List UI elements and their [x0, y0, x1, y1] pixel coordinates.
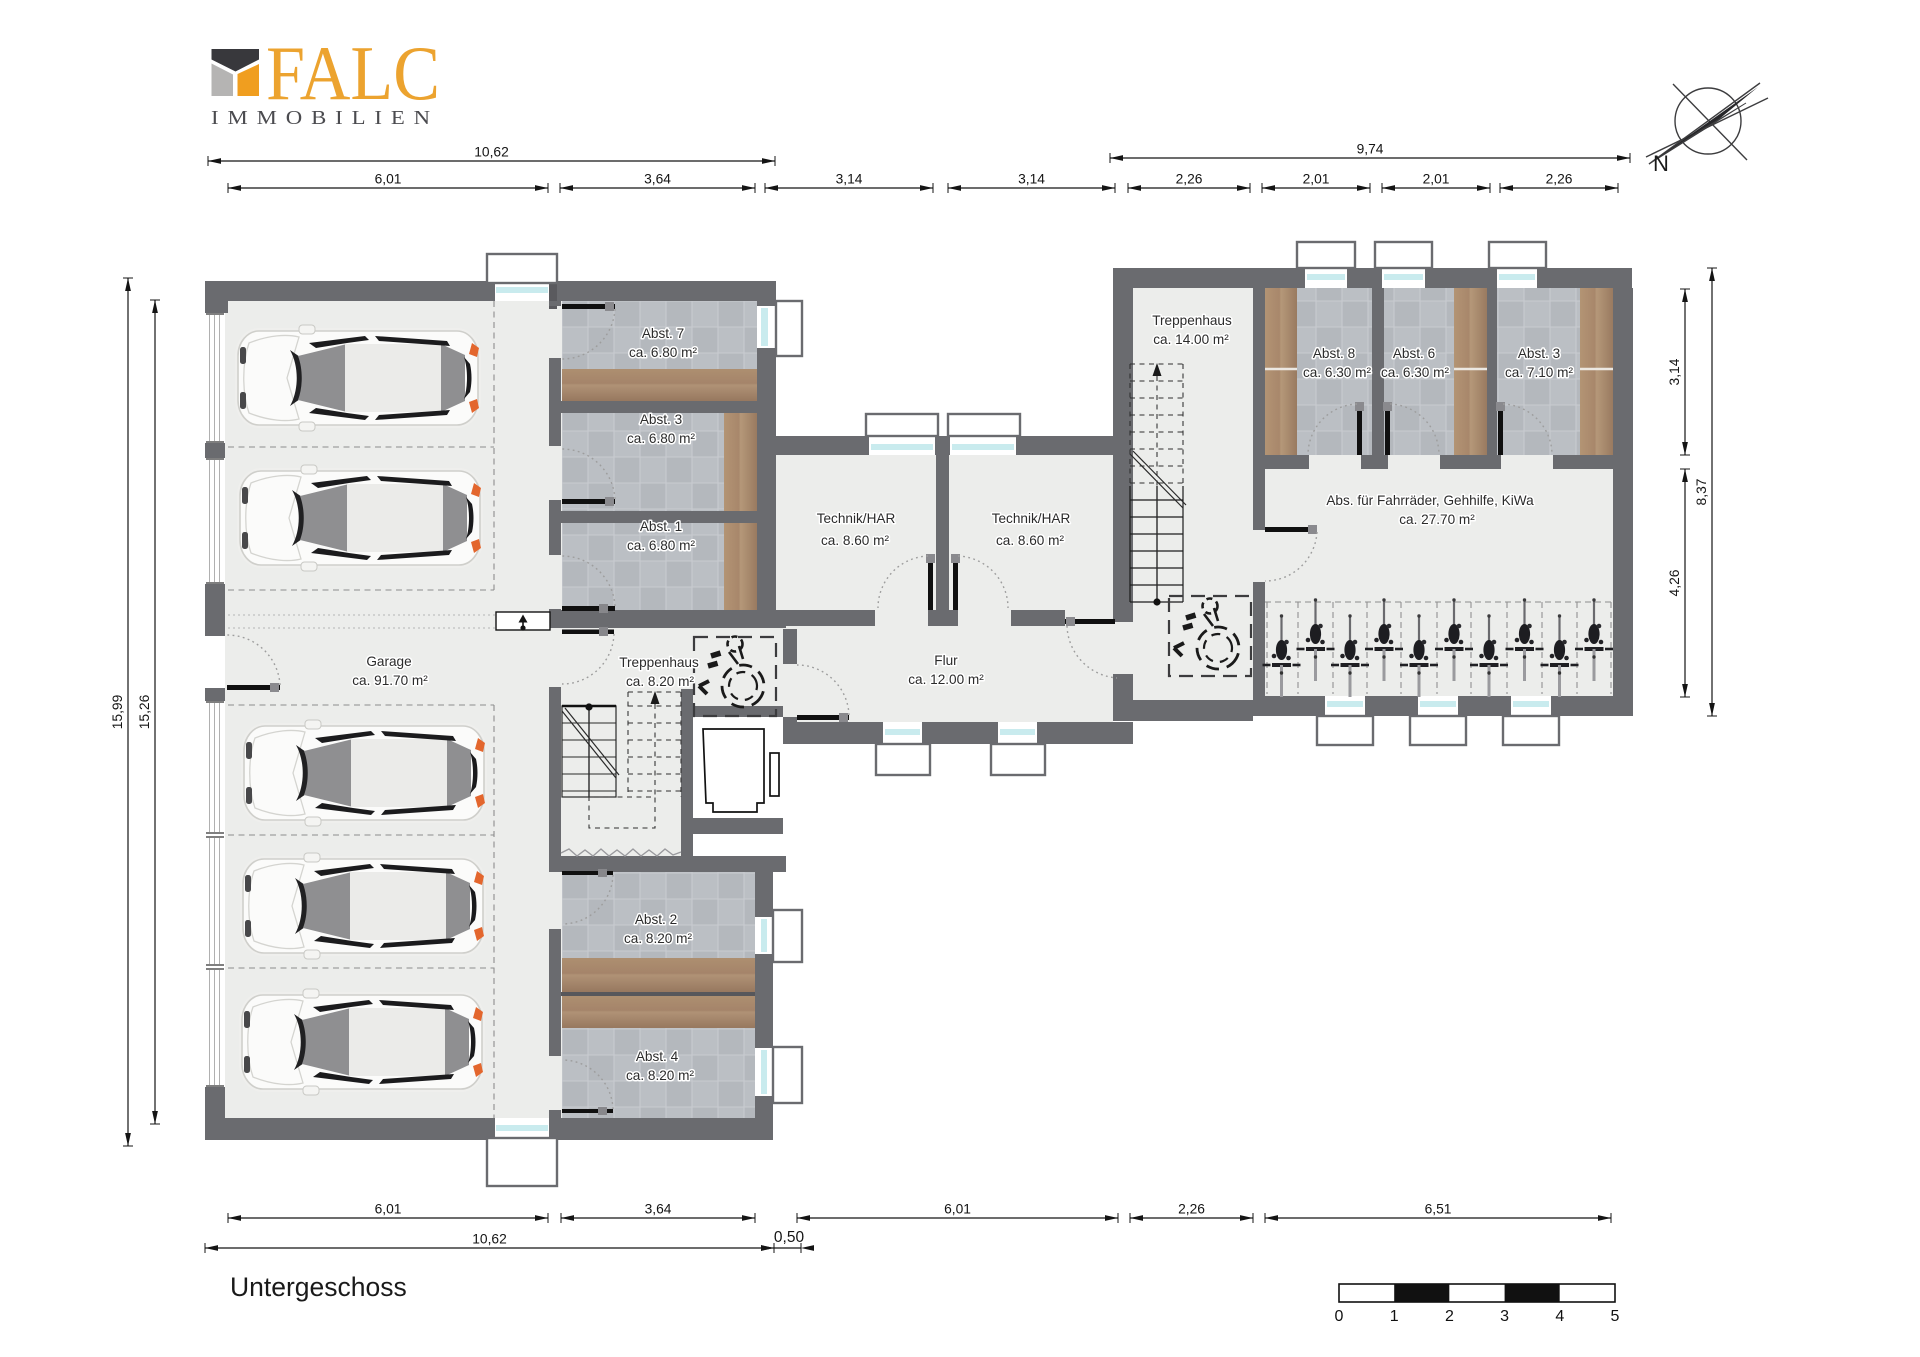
svg-text:Abst. 3: Abst. 3 [1518, 346, 1560, 361]
svg-text:ca. 8.60 m²: ca. 8.60 m² [996, 533, 1064, 548]
svg-text:FALC: FALC [266, 30, 440, 116]
svg-text:ca. 14.00 m²: ca. 14.00 m² [1153, 332, 1229, 347]
svg-text:ca. 8.60 m²: ca. 8.60 m² [821, 533, 889, 548]
svg-text:Abst. 1: Abst. 1 [640, 519, 682, 534]
svg-text:9,74: 9,74 [1357, 142, 1384, 157]
svg-text:ca. 27.70 m²: ca. 27.70 m² [1399, 512, 1475, 527]
svg-text:2,26: 2,26 [1546, 172, 1573, 187]
svg-text:Treppenhaus: Treppenhaus [1152, 313, 1232, 328]
svg-text:IMMOBILIEN: IMMOBILIEN [211, 107, 439, 129]
svg-text:Technik/HAR: Technik/HAR [992, 511, 1071, 526]
svg-text:3,64: 3,64 [645, 1202, 672, 1217]
svg-text:ca. 91.70 m²: ca. 91.70 m² [352, 673, 428, 688]
svg-text:Abst. 3: Abst. 3 [640, 412, 682, 427]
svg-text:Abst. 7: Abst. 7 [642, 326, 684, 341]
svg-text:8,37: 8,37 [1694, 479, 1709, 506]
svg-text:Technik/HAR: Technik/HAR [817, 511, 896, 526]
svg-text:2,26: 2,26 [1178, 1202, 1205, 1217]
svg-text:ca. 6.80 m²: ca. 6.80 m² [627, 538, 695, 553]
svg-text:3,64: 3,64 [644, 172, 671, 187]
svg-text:Untergeschoss: Untergeschoss [230, 1272, 407, 1302]
svg-text:4,26: 4,26 [1667, 569, 1682, 596]
svg-text:Abst. 2: Abst. 2 [635, 912, 677, 927]
svg-text:2,01: 2,01 [1423, 172, 1450, 187]
svg-text:ca. 8.20 m²: ca. 8.20 m² [626, 1068, 694, 1083]
svg-text:4: 4 [1555, 1308, 1564, 1325]
svg-text:15,26: 15,26 [137, 694, 152, 729]
svg-text:Abst. 8: Abst. 8 [1313, 346, 1355, 361]
svg-text:2,26: 2,26 [1176, 172, 1203, 187]
svg-text:ca. 6.80 m²: ca. 6.80 m² [629, 345, 697, 360]
svg-text:3,14: 3,14 [836, 172, 863, 187]
svg-text:0,50: 0,50 [774, 1229, 805, 1246]
svg-text:ca. 8.20 m²: ca. 8.20 m² [626, 674, 694, 689]
svg-text:2,01: 2,01 [1303, 172, 1330, 187]
svg-text:3,14: 3,14 [1018, 172, 1045, 187]
svg-text:Treppenhaus: Treppenhaus [619, 655, 699, 670]
svg-text:5: 5 [1611, 1308, 1620, 1325]
svg-text:Abs. für Fahrräder, Gehhilfe,: Abs. für Fahrräder, Gehhilfe, KiWa [1326, 493, 1534, 508]
svg-text:15,99: 15,99 [110, 694, 125, 729]
svg-text:10,62: 10,62 [472, 1232, 507, 1247]
svg-text:Flur: Flur [934, 653, 958, 668]
svg-text:2: 2 [1445, 1308, 1454, 1325]
svg-text:ca. 7.10 m²: ca. 7.10 m² [1505, 365, 1573, 380]
svg-text:0: 0 [1335, 1308, 1344, 1325]
svg-text:6,01: 6,01 [375, 1202, 402, 1217]
svg-text:ca. 6.30 m²: ca. 6.30 m² [1303, 365, 1371, 380]
svg-text:Abst. 4: Abst. 4 [636, 1049, 679, 1064]
svg-text:ca. 12.00 m²: ca. 12.00 m² [908, 672, 984, 687]
svg-text:1: 1 [1390, 1308, 1399, 1325]
svg-text:3,14: 3,14 [1667, 358, 1682, 385]
svg-text:3: 3 [1500, 1308, 1509, 1325]
svg-text:ca. 6.30 m²: ca. 6.30 m² [1381, 365, 1449, 380]
svg-text:6,01: 6,01 [375, 172, 402, 187]
svg-text:6,51: 6,51 [1425, 1202, 1452, 1217]
svg-text:10,62: 10,62 [474, 145, 509, 160]
svg-text:6,01: 6,01 [944, 1202, 971, 1217]
svg-text:ca. 6.80 m²: ca. 6.80 m² [627, 431, 695, 446]
svg-text:Garage: Garage [366, 654, 411, 669]
svg-text:ca. 8.20 m²: ca. 8.20 m² [624, 931, 692, 946]
svg-text:N: N [1653, 151, 1669, 176]
svg-text:Abst. 6: Abst. 6 [1393, 346, 1435, 361]
